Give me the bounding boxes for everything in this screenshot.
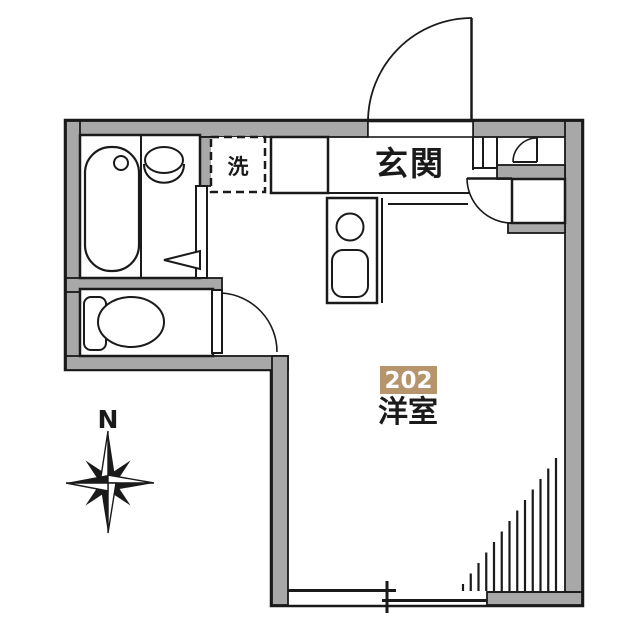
wall-bottom-right [487,592,582,605]
toilet-door-leaf [212,290,222,353]
compass-point-w-white [66,483,108,491]
closet [512,179,565,223]
toilet-bowl [98,297,164,347]
entrance-door-swing [368,18,472,122]
washbasin [145,147,183,173]
wall-closet-band-lower [508,223,565,233]
wall-closet-band-upper [497,165,565,179]
compass-north-label: N [98,405,119,434]
compass-point-s-white [108,483,116,533]
wall-toilet-bottom [66,356,288,370]
stove-burner [337,214,364,241]
entrance-label: 玄関 [375,144,445,183]
compass-rose: N [66,405,154,533]
entrance-opening [368,122,473,138]
room-number: 202 [384,368,432,394]
wall-right [565,121,582,605]
floor-plan: 洗 玄関 202 洋室 [0,0,640,640]
wall-left [66,121,80,370]
kitchen-cabinet [271,137,328,193]
compass-point-n-white [100,431,108,483]
laundry-label: 洗 [228,155,249,179]
room-name: 洋室 [378,395,438,430]
bath-faucet [114,156,128,170]
floor-plan-svg: 洗 玄関 202 洋室 [0,0,640,640]
kitchen-sink [332,250,368,297]
wall-lower-left [272,356,288,605]
compass-point-e-white [108,475,154,483]
bathtub [85,147,139,271]
compass-point-w-black [66,475,108,483]
